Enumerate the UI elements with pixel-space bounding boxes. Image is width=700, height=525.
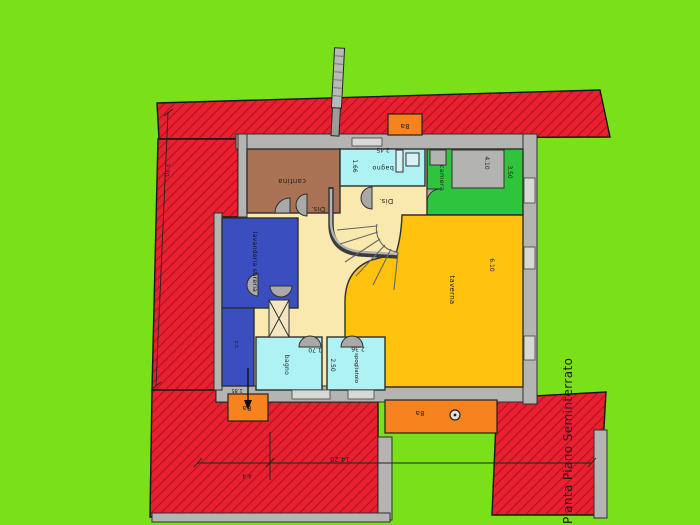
camera-dim-width: 4.10	[483, 156, 490, 170]
bagno-bottom-label: bagno	[283, 355, 290, 375]
spogliatoio-dim-width: 2.36	[351, 345, 365, 352]
bagno-top-label: bagno	[372, 164, 394, 172]
shaft-left-label: 8a	[242, 404, 251, 412]
camera-label: camera	[438, 165, 446, 191]
nightstand	[430, 150, 446, 165]
window-right-1	[524, 178, 535, 203]
dim-overall-width: 14.20	[330, 455, 350, 463]
window-right-2	[524, 247, 535, 269]
dis2-label: Dis.	[379, 197, 393, 205]
bed	[452, 150, 504, 188]
wall-site-bottom	[152, 513, 390, 522]
flue-bar-base	[331, 108, 340, 136]
radiator	[396, 150, 403, 172]
lavanderia-label: lavanderia stireria	[251, 232, 258, 292]
sink	[406, 153, 419, 166]
wall-court-left	[378, 437, 392, 520]
window-bottom-2	[348, 390, 374, 399]
terrain-bottom-right	[492, 392, 606, 515]
dis1-label: Dis.	[311, 205, 325, 213]
taverna-label: taverna	[448, 275, 456, 304]
wall-left-upper	[238, 134, 247, 217]
dim-laundry-width: 1.85	[231, 387, 242, 393]
bagno-top-dim-left: 1.66	[351, 159, 358, 173]
bagno-top-dim-width: 2.45	[376, 146, 390, 153]
spogliatoio-dim-depth: 2.50	[329, 358, 336, 372]
wall-court-right	[594, 430, 607, 518]
spogliatoio-label: spogliatoio	[353, 353, 359, 384]
locale-tecnico-label: c.t.	[233, 341, 239, 349]
window-right-3	[524, 336, 535, 360]
camera-dim-depth: 3.50	[506, 165, 513, 179]
window-top-1	[352, 138, 382, 146]
shaft-bottom-strip	[385, 400, 497, 433]
dim-left-offset: 4.4	[242, 472, 252, 479]
bagno-bottom-dim: 1.70	[308, 346, 322, 353]
taverna-dim-depth: 6.10	[488, 258, 495, 272]
cantina-label: cantina	[278, 177, 306, 185]
floor-plan-canvas: cantina bagno 2.45 1.66 camera 4.10 3.50…	[0, 0, 700, 525]
shaft-strip-label: 8a	[415, 409, 424, 417]
window-bottom-1	[292, 390, 330, 399]
shaft-top-label: 8a	[400, 122, 409, 130]
dim-left-side: 3.70	[162, 163, 170, 177]
vent-dot	[454, 414, 457, 417]
plan-title: Pianta Piano Seminterrato	[561, 358, 575, 524]
wall-left-lower	[214, 213, 222, 390]
